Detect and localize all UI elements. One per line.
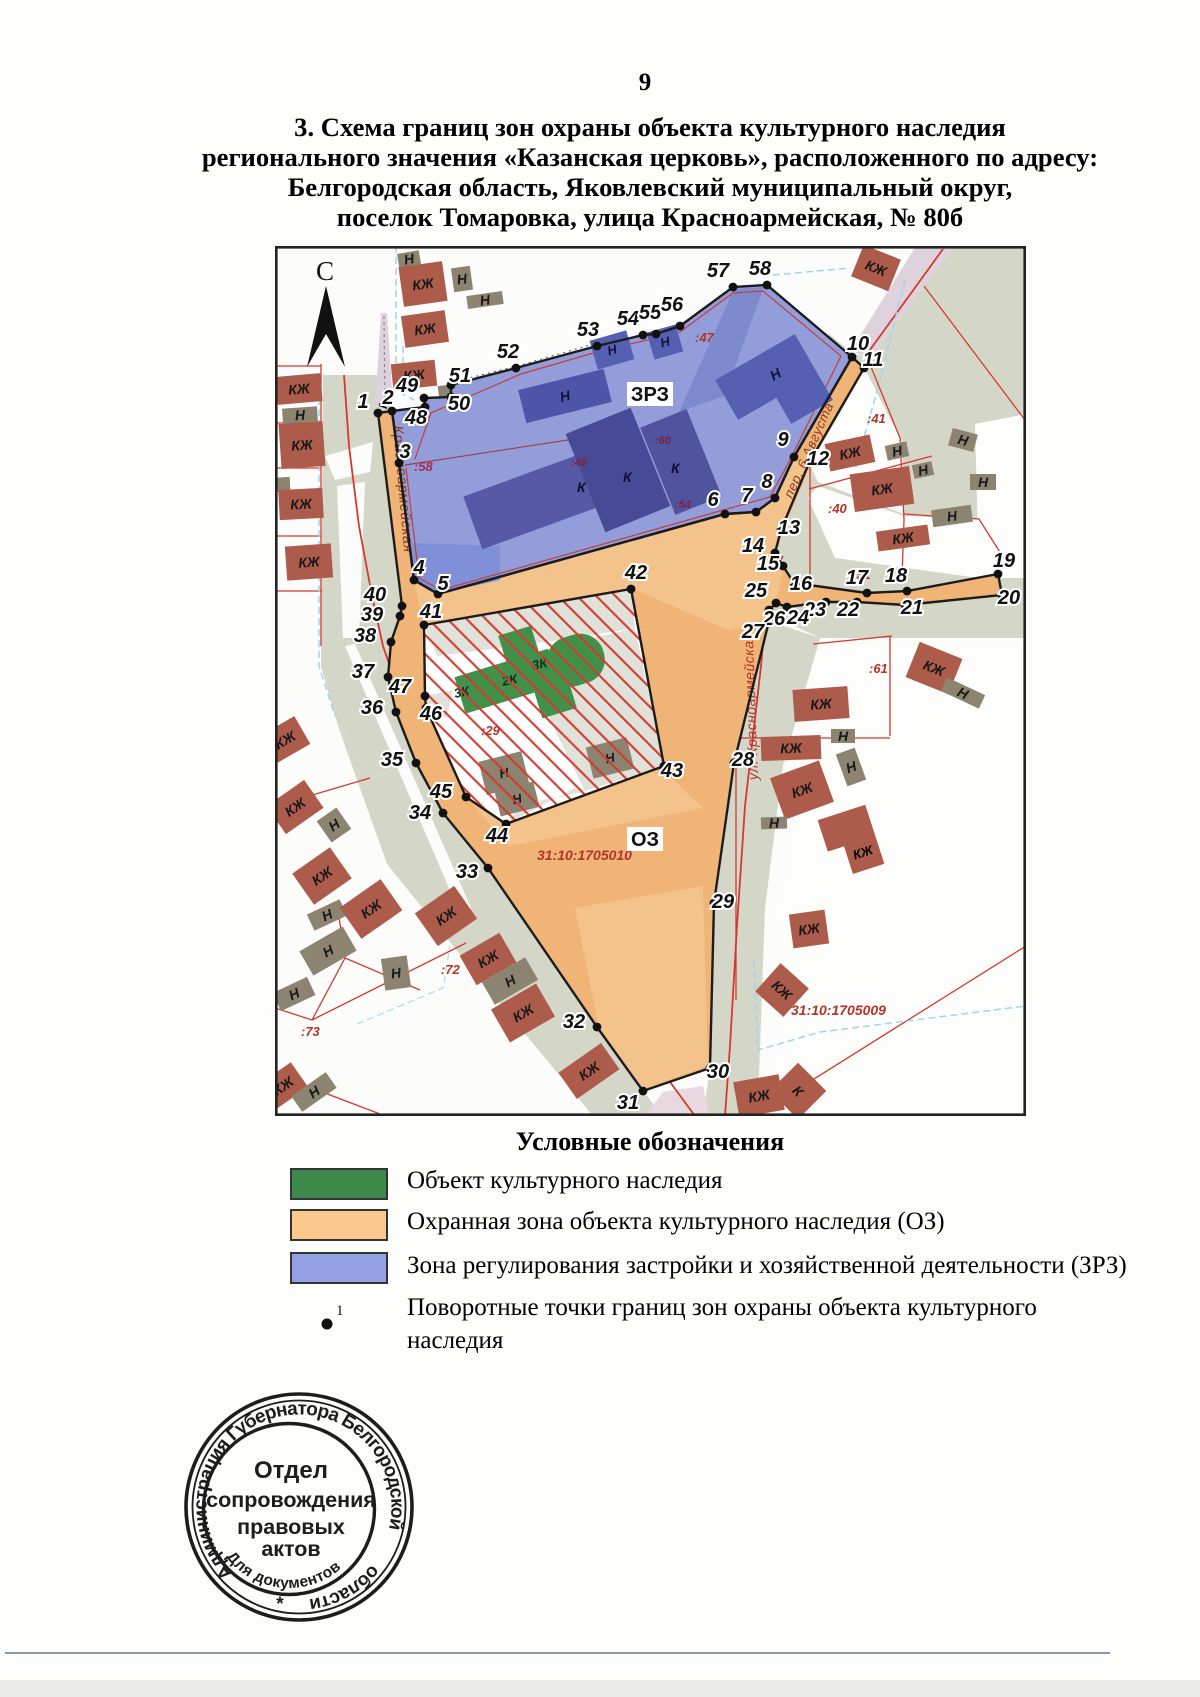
svg-text:27: 27 — [741, 621, 765, 643]
svg-text:45: 45 — [429, 781, 453, 803]
svg-text:9: 9 — [777, 429, 789, 451]
svg-text:24: 24 — [786, 607, 809, 629]
svg-text:22: 22 — [836, 599, 859, 621]
svg-text:КЖ: КЖ — [298, 553, 322, 571]
svg-text:31: 31 — [617, 1092, 639, 1114]
svg-text:50: 50 — [448, 393, 470, 415]
svg-text:6: 6 — [707, 489, 719, 511]
svg-text:11: 11 — [863, 349, 884, 371]
svg-text::61: :61 — [869, 661, 888, 676]
svg-text::47: :47 — [695, 330, 715, 345]
svg-text:40: 40 — [363, 584, 386, 606]
svg-text:КЖ: КЖ — [891, 528, 916, 547]
svg-text:25: 25 — [744, 580, 768, 602]
svg-text:Отдел: Отдел — [254, 1457, 328, 1484]
svg-text:37: 37 — [352, 661, 375, 683]
svg-text:Н: Н — [838, 728, 849, 744]
svg-text:актов: актов — [261, 1537, 320, 1561]
svg-text::60: :60 — [655, 435, 672, 447]
svg-text:КЖ: КЖ — [288, 380, 312, 398]
svg-text:39: 39 — [361, 604, 384, 626]
svg-text:15: 15 — [757, 553, 780, 575]
svg-text:26: 26 — [762, 608, 786, 630]
svg-text:13: 13 — [778, 517, 800, 539]
svg-text:43: 43 — [660, 760, 683, 782]
svg-text:1: 1 — [357, 391, 368, 413]
svg-text::58: :58 — [414, 459, 434, 474]
svg-text:41: 41 — [419, 601, 442, 623]
svg-text:Н: Н — [978, 474, 989, 490]
svg-text:К: К — [623, 469, 633, 485]
svg-text:30: 30 — [707, 1061, 729, 1083]
svg-text:16: 16 — [790, 573, 813, 595]
svg-text::41: :41 — [867, 411, 886, 426]
svg-text:12: 12 — [807, 448, 829, 470]
svg-text:КЖ: КЖ — [810, 695, 834, 713]
svg-text:8: 8 — [761, 471, 773, 493]
svg-text:48: 48 — [404, 407, 428, 429]
svg-text::40: :40 — [828, 501, 848, 516]
svg-text::29: :29 — [481, 723, 501, 738]
svg-text:7: 7 — [741, 485, 753, 507]
svg-text:сопровождения: сопровождения — [206, 1488, 376, 1512]
svg-text:52: 52 — [497, 341, 519, 363]
svg-text::73: :73 — [301, 1024, 321, 1039]
svg-text:КЖ: КЖ — [290, 495, 313, 512]
svg-text:32: 32 — [563, 1011, 585, 1033]
svg-text:47: 47 — [388, 676, 412, 698]
svg-text:*: * — [276, 1594, 284, 1615]
svg-text:44: 44 — [485, 825, 508, 847]
svg-text:56: 56 — [661, 294, 684, 316]
svg-text:КЖ: КЖ — [870, 479, 895, 498]
svg-text:38: 38 — [354, 625, 377, 647]
svg-text::54: :54 — [675, 499, 691, 511]
svg-text:ЗРЗ: ЗРЗ — [631, 384, 669, 406]
svg-text:КЖ: КЖ — [780, 740, 803, 757]
svg-text:КЖ: КЖ — [413, 319, 438, 338]
svg-text:35: 35 — [381, 749, 404, 771]
svg-text:2: 2 — [381, 387, 393, 409]
svg-text:4: 4 — [412, 557, 424, 579]
svg-text:К: К — [577, 479, 587, 495]
svg-text:36: 36 — [361, 697, 384, 719]
svg-text:33: 33 — [456, 861, 478, 883]
svg-text::72: :72 — [441, 962, 461, 977]
svg-text:21: 21 — [900, 597, 923, 619]
svg-text::49: :49 — [571, 457, 588, 469]
svg-text:КЖ: КЖ — [411, 274, 436, 293]
svg-text:46: 46 — [419, 703, 443, 725]
svg-text:58: 58 — [749, 258, 772, 280]
svg-text:ОЗ: ОЗ — [631, 829, 659, 851]
svg-text:55: 55 — [639, 302, 662, 324]
svg-text:3: 3 — [399, 441, 410, 463]
svg-text:правовых: правовых — [237, 1515, 345, 1539]
svg-text:КЖ: КЖ — [797, 919, 822, 938]
svg-text:34: 34 — [409, 802, 431, 824]
svg-text:К: К — [671, 460, 681, 476]
svg-text:31:10:1705010: 31:10:1705010 — [537, 847, 632, 863]
svg-text:28: 28 — [731, 749, 755, 771]
svg-text:С: С — [316, 256, 334, 286]
svg-text:57: 57 — [707, 260, 730, 282]
svg-text:53: 53 — [577, 319, 599, 341]
svg-text:51: 51 — [449, 365, 471, 387]
svg-text:31:10:1705009: 31:10:1705009 — [791, 1002, 886, 1018]
svg-text:1: 1 — [336, 1303, 344, 1319]
svg-text:20: 20 — [997, 587, 1020, 609]
svg-text:42: 42 — [624, 562, 647, 584]
svg-text:5: 5 — [437, 573, 449, 595]
svg-text:54: 54 — [617, 308, 639, 330]
svg-text:КЖ: КЖ — [291, 436, 315, 454]
svg-text:19: 19 — [993, 550, 1016, 572]
svg-text:18: 18 — [885, 565, 908, 587]
svg-text:17: 17 — [846, 567, 869, 589]
svg-text:29: 29 — [711, 891, 735, 913]
svg-text:49: 49 — [395, 375, 419, 397]
svg-text:Н: Н — [769, 815, 781, 831]
